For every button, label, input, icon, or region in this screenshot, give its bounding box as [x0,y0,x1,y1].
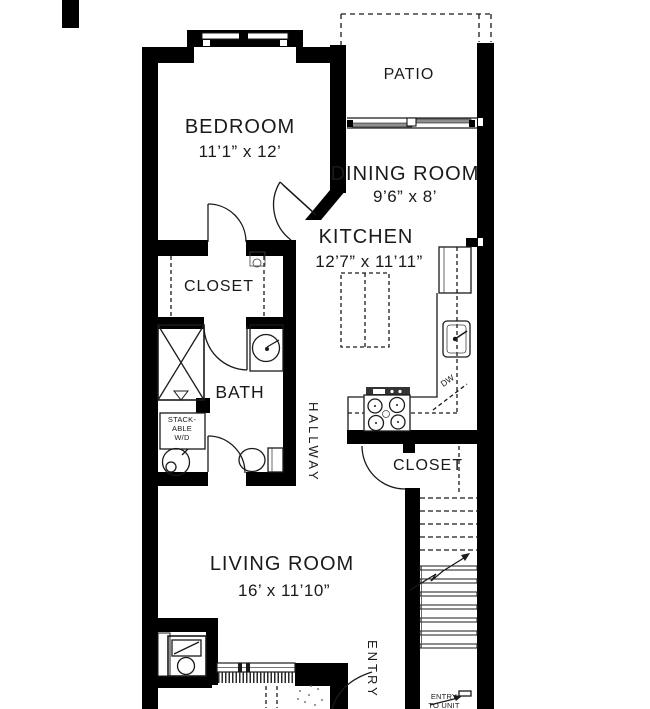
window-tick-lower [478,238,483,246]
washer-dryer-label-3: W/D [174,433,190,442]
closet-label: CLOSET [184,278,254,295]
kitchen-dims: 12’7” x 11’11” [315,252,422,271]
bath-label: BATH [215,382,264,402]
background [0,0,650,709]
kitchen-label: KITCHEN [319,226,414,248]
bedroom-label: BEDROOM [185,116,295,138]
living-room-label: LIVING ROOM [210,553,354,575]
patio-label: PATIO [384,66,435,83]
window-tick-upper [478,118,483,126]
washer-dryer-label-1: STACK- [168,415,196,424]
dining-room-label: DINING ROOM [331,163,480,185]
bedroom-dims: 11’1” x 12’ [199,142,282,161]
entry-to-unit-label-2: TO UNIT [428,701,459,709]
entry-closet-label: CLOSET [393,457,463,474]
floor-plan: STACK- ABLE W/D [0,0,650,709]
hallway-label: HALLWAY [306,402,321,483]
washer-dryer-label-2: ABLE [172,424,192,433]
entry-label: ENTRY [365,640,380,699]
dining-room-dims: 9’6” x 8’ [373,187,437,206]
stove-fixture [364,387,410,431]
living-room-dims: 16’ x 11’10” [238,581,330,600]
